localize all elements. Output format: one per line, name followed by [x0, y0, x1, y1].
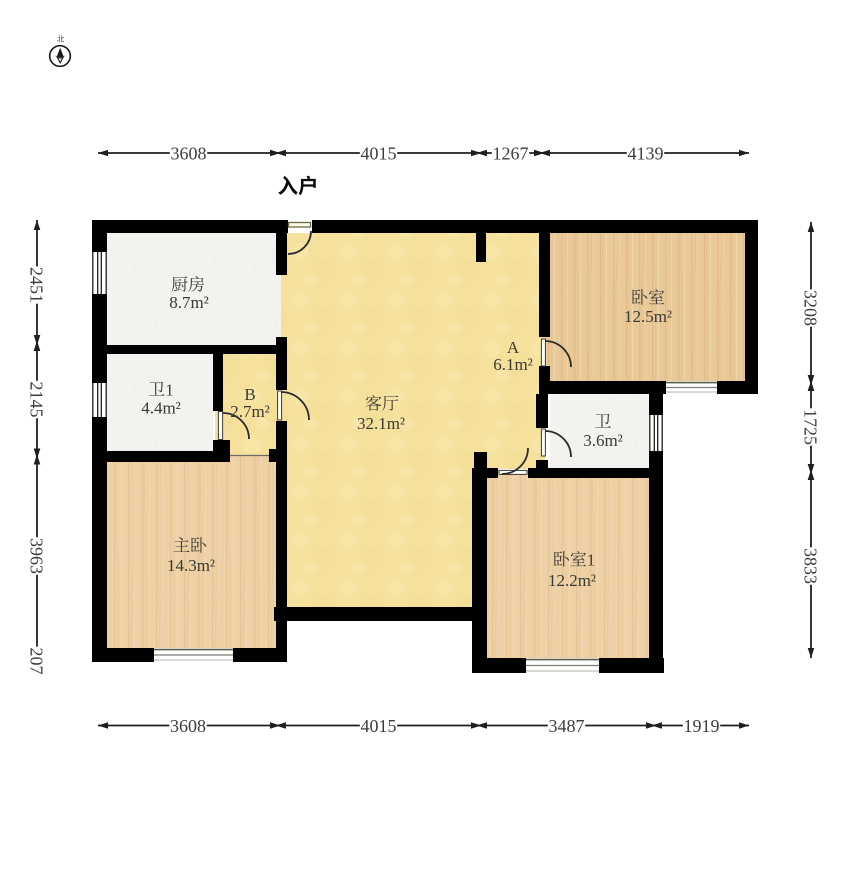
- svg-text:2451: 2451: [27, 267, 47, 303]
- svg-text:12.2m²: 12.2m²: [548, 571, 596, 590]
- svg-text:1: 1: [587, 550, 596, 569]
- svg-text:2.7m²: 2.7m²: [230, 402, 270, 421]
- svg-text:3608: 3608: [170, 716, 206, 736]
- svg-text:4139: 4139: [628, 143, 664, 163]
- svg-text:1919: 1919: [684, 716, 720, 736]
- svg-text:14.3m²: 14.3m²: [167, 556, 215, 575]
- svg-text:6.1m²: 6.1m²: [493, 355, 533, 374]
- svg-text:3487: 3487: [549, 716, 585, 736]
- svg-text:3608: 3608: [171, 143, 207, 163]
- svg-text:1725: 1725: [801, 409, 821, 445]
- svg-text:3963: 3963: [27, 538, 47, 574]
- svg-text:1267: 1267: [493, 143, 529, 163]
- svg-text:4015: 4015: [361, 143, 397, 163]
- svg-text:1: 1: [165, 380, 174, 399]
- svg-text:32.1m²: 32.1m²: [357, 414, 405, 433]
- svg-text:3.6m²: 3.6m²: [583, 431, 623, 450]
- svg-text:207: 207: [27, 648, 47, 675]
- svg-text:2145: 2145: [27, 382, 47, 418]
- svg-text:3208: 3208: [801, 290, 821, 326]
- svg-text:4.4m²: 4.4m²: [141, 398, 181, 417]
- svg-text:3833: 3833: [801, 548, 821, 584]
- svg-text:4015: 4015: [361, 716, 397, 736]
- svg-text:12.5m²: 12.5m²: [624, 307, 672, 326]
- svg-text:8.7m²: 8.7m²: [169, 293, 209, 312]
